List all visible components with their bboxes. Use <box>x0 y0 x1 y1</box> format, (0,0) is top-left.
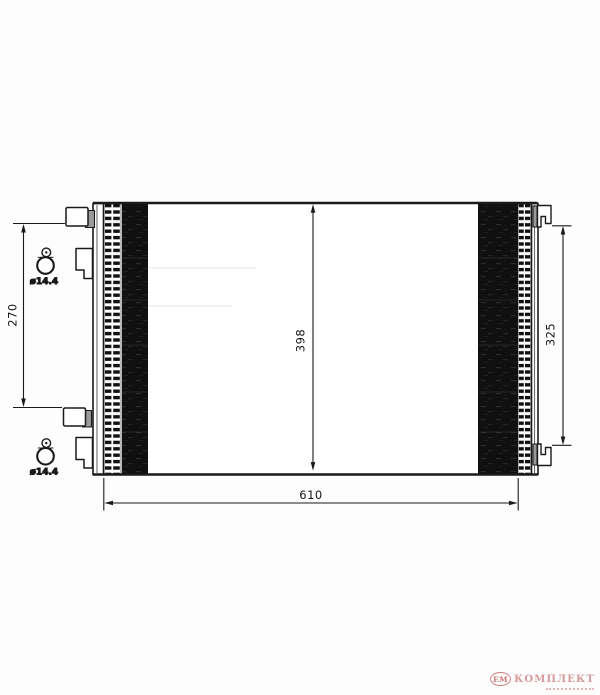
dim-610-arrow-right <box>509 501 518 506</box>
left-lower-pipe-fitting <box>64 408 92 427</box>
condenser-drawing-page: ø14.4 ø14.4 270 398 325 <box>0 0 600 695</box>
dim-325-label: 325 <box>544 323 558 346</box>
left-fin-strip <box>104 204 121 474</box>
dim-610-arrow-left <box>105 501 114 506</box>
dim-325-arrow-up <box>561 226 566 235</box>
watermark-badge-oval: ЕМ <box>490 672 511 686</box>
right-top-mount-bracket <box>533 206 551 228</box>
left-top-pipe-fitting <box>66 208 95 228</box>
left-header-tank <box>93 204 104 475</box>
dim-325: 325 <box>544 226 572 445</box>
main-body <box>93 203 538 475</box>
left-lower-mount-bracket <box>76 438 93 469</box>
watermark-row: ЕМ КОМПЛЕКТ <box>511 672 595 686</box>
watermark-logo: ЕМ КОМПЛЕКТ <box>511 672 595 690</box>
bottom-hole-diameter-label: ø14.4 <box>30 468 58 478</box>
logo-tagline <box>546 688 594 690</box>
dim-270-arrow-down <box>21 399 26 408</box>
right-bottom-mount-bracket <box>533 444 551 466</box>
dim-325-arrow-down <box>561 437 566 446</box>
dim-610: 610 <box>104 478 518 511</box>
right-core-column <box>478 203 518 475</box>
left-attachments <box>64 208 95 469</box>
top-mount-grommet: ø14.4 <box>30 248 58 287</box>
watermark-brand-name: КОМПЛЕКТ <box>514 674 595 685</box>
bottom-mount-grommet: ø14.4 <box>30 439 58 478</box>
dim-270-arrow-up <box>21 224 26 233</box>
dim-398-label: 398 <box>294 329 308 352</box>
condenser-technical-drawing: ø14.4 ø14.4 270 398 325 <box>0 0 600 695</box>
dim-270: 270 <box>6 224 66 408</box>
dim-610-label: 610 <box>299 488 322 502</box>
left-upper-mount-bracket <box>76 249 93 279</box>
dim-270-label: 270 <box>6 303 20 326</box>
right-fin-strip <box>518 204 531 474</box>
left-core-column <box>122 203 148 475</box>
top-hole-diameter-label: ø14.4 <box>30 277 58 287</box>
